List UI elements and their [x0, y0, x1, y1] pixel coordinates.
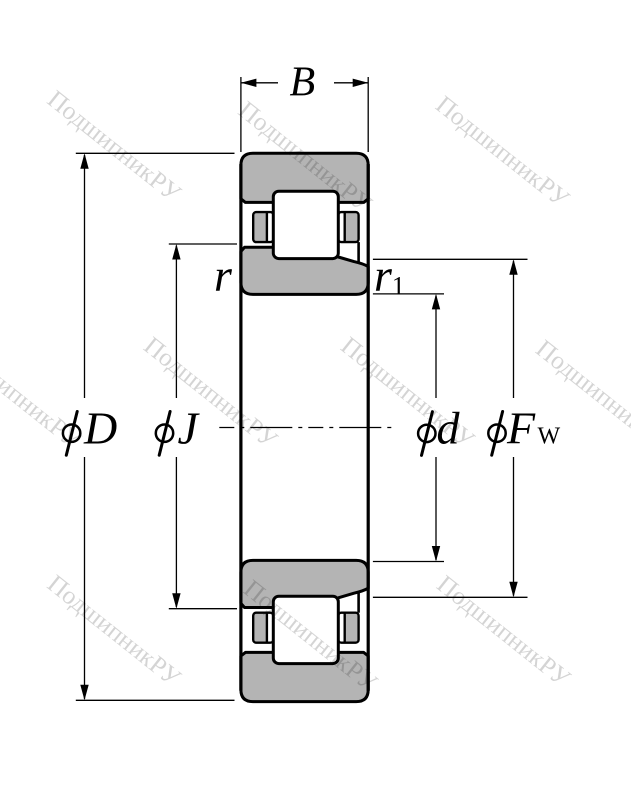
- svg-text:F: F: [506, 403, 536, 454]
- svg-text:D: D: [83, 403, 117, 454]
- svg-text:J: J: [178, 403, 201, 454]
- svg-text:B: B: [290, 59, 316, 105]
- svg-text:r: r: [214, 250, 233, 301]
- svg-text:W: W: [538, 424, 561, 450]
